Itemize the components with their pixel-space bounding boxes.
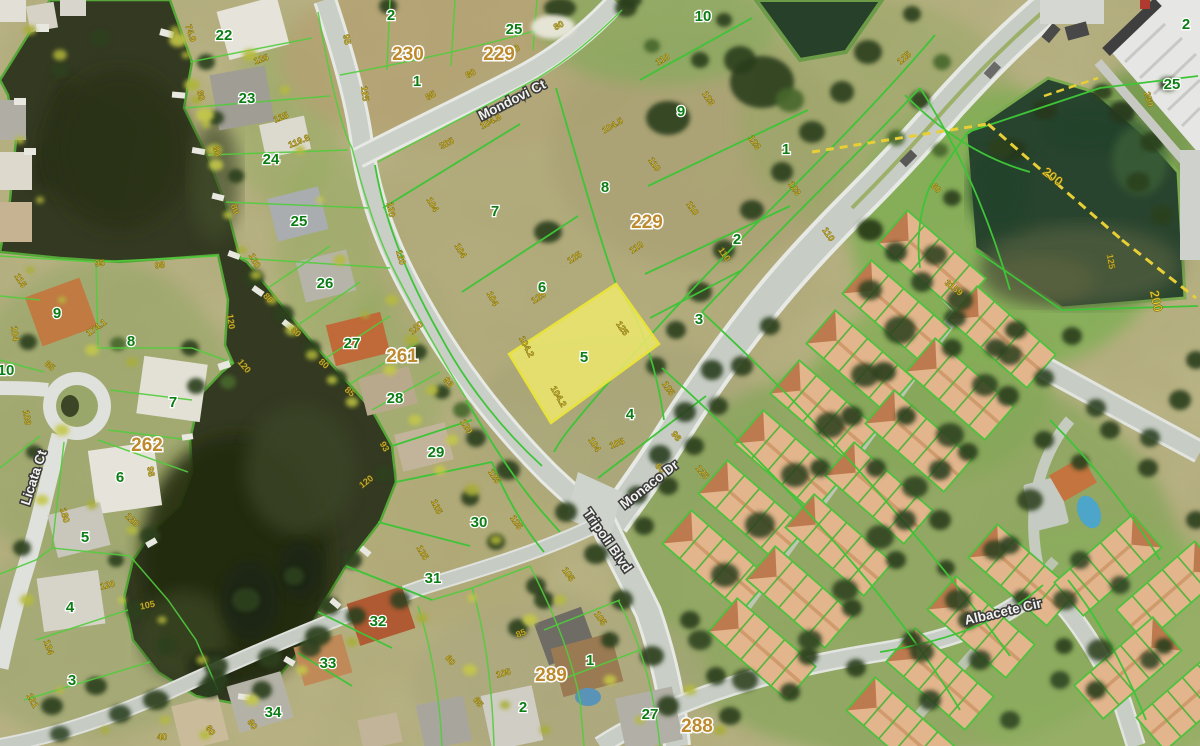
svg-text:25: 25 [291,213,308,230]
svg-text:229: 229 [483,44,515,65]
svg-text:261: 261 [386,346,418,367]
svg-text:4: 4 [66,599,75,616]
svg-text:229: 229 [631,212,663,233]
svg-text:8: 8 [127,333,135,350]
svg-text:24: 24 [263,151,280,168]
svg-text:9: 9 [53,305,61,322]
svg-text:2: 2 [519,699,527,716]
svg-text:5: 5 [580,349,588,366]
svg-text:1: 1 [413,73,421,90]
svg-text:34: 34 [265,704,282,721]
svg-text:31: 31 [425,570,442,587]
svg-text:288: 288 [681,716,713,737]
svg-text:6: 6 [538,279,546,296]
svg-text:22: 22 [216,27,233,44]
svg-text:104: 104 [9,325,21,341]
svg-text:2: 2 [1182,16,1190,33]
svg-text:33: 33 [320,655,337,672]
svg-text:7: 7 [491,203,499,220]
svg-text:1: 1 [782,141,790,158]
svg-text:2: 2 [387,7,395,24]
svg-text:28: 28 [387,390,404,407]
svg-text:2: 2 [733,231,741,248]
svg-text:25: 25 [506,21,523,38]
svg-text:27: 27 [344,335,361,352]
svg-text:10: 10 [695,8,712,25]
svg-text:5: 5 [81,529,89,546]
svg-text:262: 262 [131,435,163,456]
svg-text:9: 9 [677,103,685,120]
svg-text:3: 3 [695,311,703,328]
svg-text:98: 98 [145,466,156,477]
svg-text:120: 120 [225,313,237,329]
svg-text:40: 40 [157,732,167,742]
svg-text:8: 8 [601,179,609,196]
svg-text:4: 4 [626,406,635,423]
svg-text:10: 10 [0,362,14,379]
svg-text:98: 98 [154,260,165,271]
svg-text:25: 25 [1164,76,1181,93]
svg-text:80: 80 [195,89,207,101]
svg-text:23: 23 [239,90,256,107]
svg-text:289: 289 [535,665,567,686]
svg-text:95: 95 [341,34,353,46]
svg-text:30: 30 [471,514,488,531]
svg-text:1: 1 [586,652,594,669]
svg-text:125: 125 [359,85,371,101]
svg-text:95: 95 [94,258,105,269]
svg-text:27: 27 [642,706,659,723]
svg-text:230: 230 [392,44,424,65]
svg-text:6: 6 [116,469,124,486]
svg-text:32: 32 [370,613,387,630]
svg-text:7: 7 [169,394,177,411]
svg-text:26: 26 [317,275,334,292]
svg-text:29: 29 [428,444,445,461]
svg-text:3: 3 [68,672,76,689]
